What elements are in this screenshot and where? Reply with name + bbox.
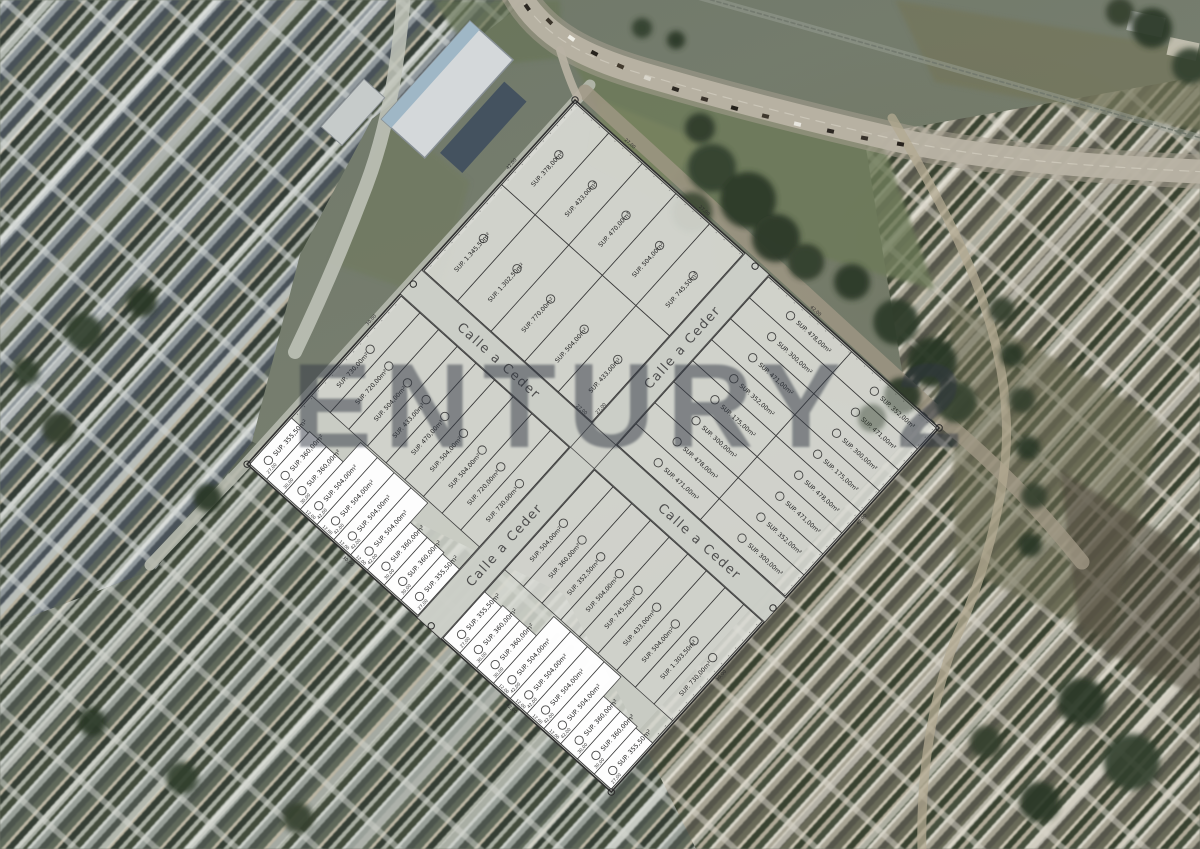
plat-group: SUP. 378,00m²SUP. 433,00m²SUP. 470,00m²S… <box>237 90 949 803</box>
plat-overlay: SUP. 378,00m²SUP. 433,00m²SUP. 470,00m²S… <box>0 0 1200 849</box>
satellite-map-view: SUP. 378,00m²SUP. 433,00m²SUP. 470,00m²S… <box>0 0 1200 849</box>
